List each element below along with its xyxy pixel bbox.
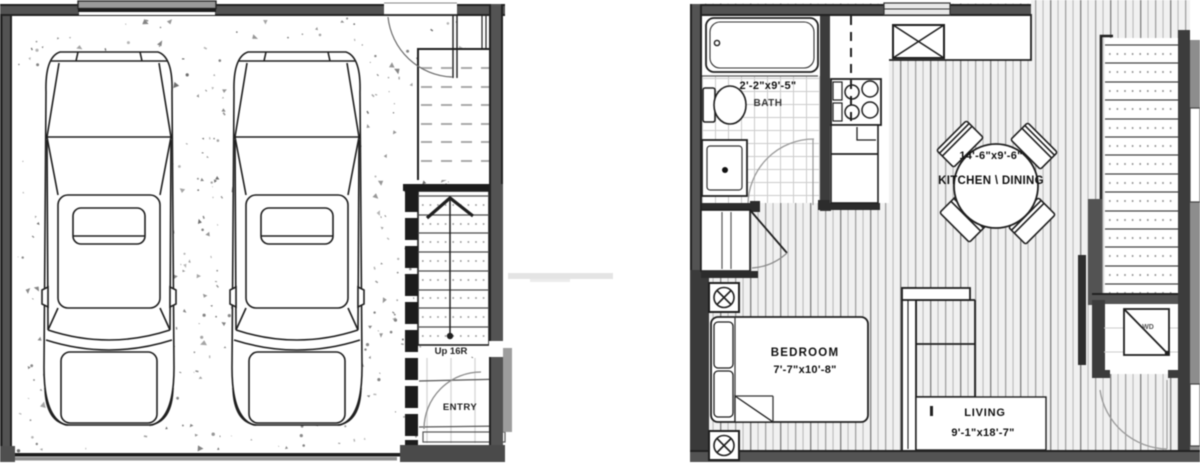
svg-text:LIVING: LIVING [964,407,1005,419]
svg-text:14'-6"x9'-6": 14'-6"x9'-6" [959,150,1022,162]
svg-text:WD: WD [1142,324,1154,331]
svg-text:2'-2"x9'-5": 2'-2"x9'-5" [740,80,797,92]
svg-text:Up 16R: Up 16R [435,346,468,357]
svg-text:ENTRY: ENTRY [443,402,478,413]
svg-text:9'-1"x18'-7": 9'-1"x18'-7" [951,427,1014,439]
svg-text:BEDROOM: BEDROOM [771,347,839,359]
svg-text:7'-7"x10'-8": 7'-7"x10'-8" [773,364,836,376]
svg-text:BATH: BATH [753,98,782,109]
svg-text:KITCHEN \ DINING: KITCHEN \ DINING [938,175,1044,187]
